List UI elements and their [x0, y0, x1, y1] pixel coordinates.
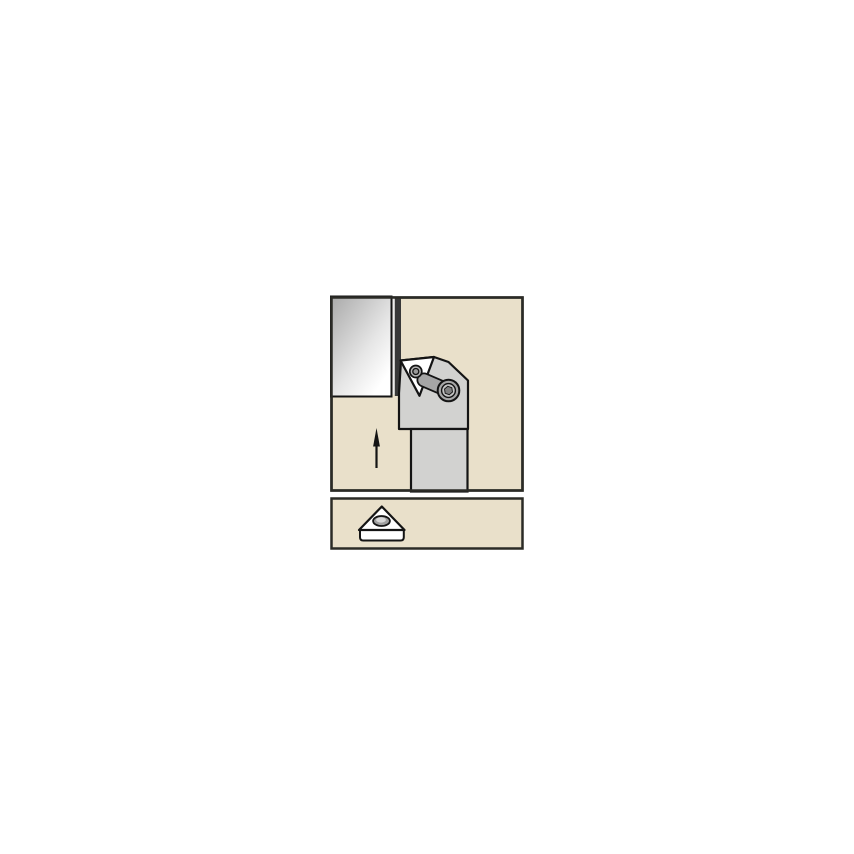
insert-screw-inner	[413, 369, 419, 375]
workpiece-edge-gap	[393, 298, 395, 395]
toolholder-diagram	[0, 0, 854, 854]
insert-panel	[332, 499, 523, 549]
diagram-canvas	[0, 0, 854, 854]
toolholder-shank	[411, 429, 468, 492]
clamp-screw-socket	[445, 386, 453, 394]
insert-hole-highlight	[376, 517, 386, 522]
insert-front-face	[360, 530, 404, 541]
workpiece	[331, 297, 392, 397]
